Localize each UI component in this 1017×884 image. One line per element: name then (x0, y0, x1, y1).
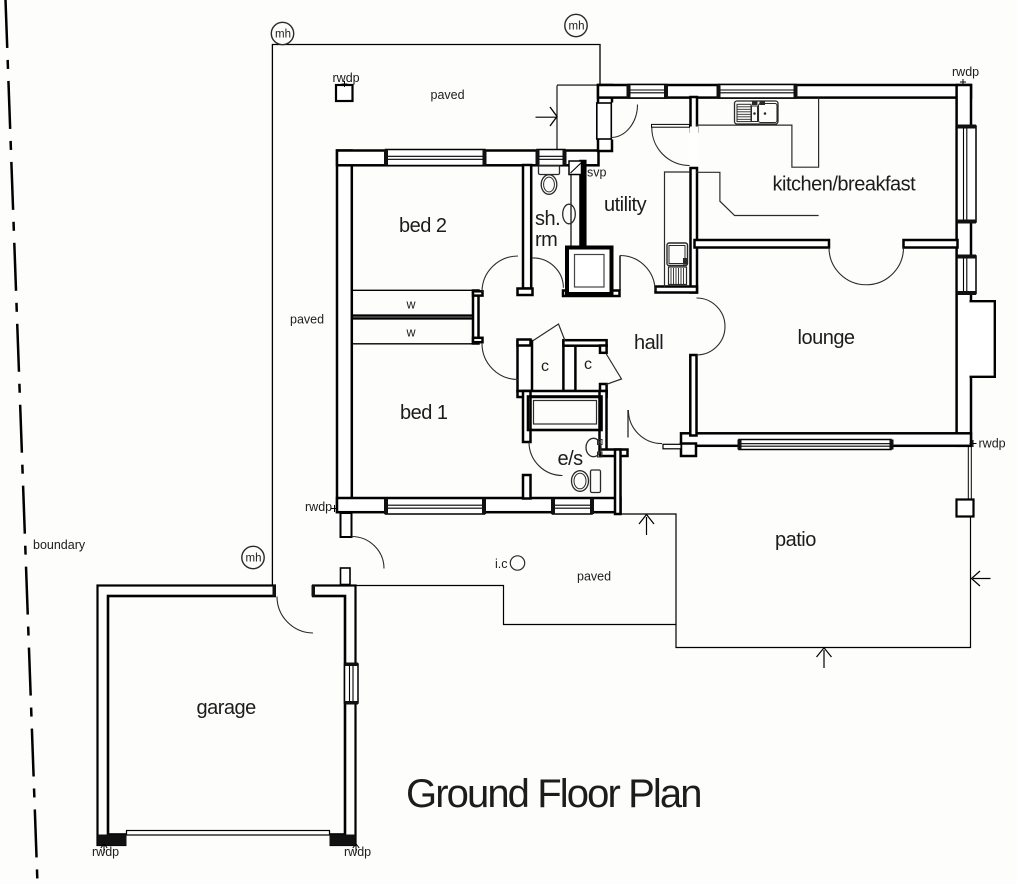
svg-text:svp: svp (587, 166, 607, 180)
svg-text:rwdp: rwdp (92, 845, 119, 859)
svg-text:mh: mh (569, 21, 585, 33)
svg-text:rwdp: rwdp (344, 845, 371, 859)
svg-text:mh: mh (275, 29, 291, 41)
svg-text:rm: rm (535, 229, 557, 251)
svg-text:paved: paved (431, 88, 465, 102)
svg-text:lounge: lounge (798, 327, 855, 349)
svg-text:rwdp: rwdp (952, 65, 979, 79)
svg-text:c: c (541, 358, 549, 375)
svg-text:mh: mh (246, 553, 262, 565)
svg-text:w: w (406, 298, 417, 312)
svg-text:w: w (406, 326, 417, 340)
svg-text:bed 2: bed 2 (399, 215, 447, 237)
svg-text:bed 1: bed 1 (400, 402, 448, 424)
svg-text:sh.: sh. (535, 208, 560, 230)
svg-text:kitchen/breakfast: kitchen/breakfast (773, 174, 917, 196)
svg-text:i.c: i.c (495, 557, 508, 571)
svg-text:patio: patio (775, 529, 816, 551)
svg-text:boundary: boundary (33, 538, 86, 552)
svg-text:paved: paved (290, 313, 324, 327)
svg-text:c: c (584, 356, 592, 373)
svg-text:rwdp: rwdp (979, 437, 1006, 451)
svg-text:rwdp: rwdp (305, 500, 332, 514)
svg-text:Ground Floor Plan: Ground Floor Plan (406, 772, 701, 816)
svg-text:rwdp: rwdp (333, 71, 360, 85)
svg-text:e/s: e/s (558, 448, 584, 470)
svg-text:hall: hall (634, 332, 663, 354)
svg-text:garage: garage (197, 697, 257, 719)
svg-text:utility: utility (604, 194, 647, 216)
svg-text:paved: paved (577, 570, 611, 584)
